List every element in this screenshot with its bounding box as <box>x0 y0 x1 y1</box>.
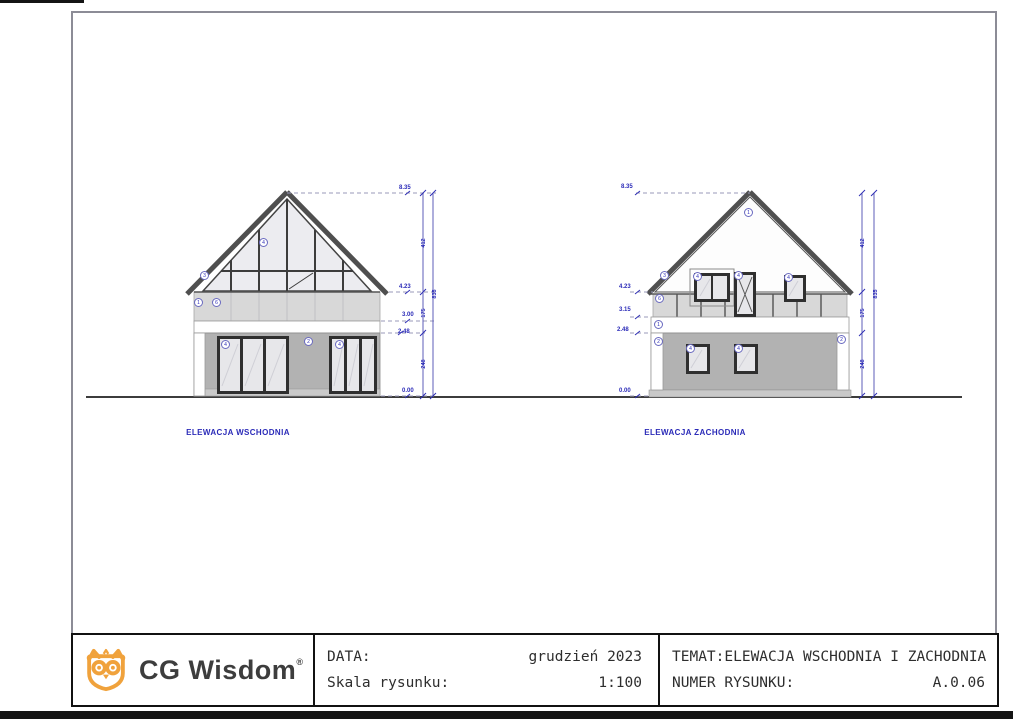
west-tag-pilaster-right: 2 <box>837 335 846 344</box>
east-dim-ticks <box>398 190 436 399</box>
west-elevation-caption: ELEWACJA ZACHODNIA <box>610 428 780 437</box>
scale-row: Skala rysunku: 1:100 <box>327 670 642 696</box>
owl-logo-icon <box>83 647 129 693</box>
west-tag-window-upper-right: 4 <box>784 273 793 282</box>
drawing-number-value: A.0.06 <box>933 670 985 696</box>
west-tag-gable-wall: 1 <box>744 208 753 217</box>
title-block-data-cell: DATA: grudzień 2023 Skala rysunku: 1:100 <box>315 635 660 705</box>
west-chain-dim-middle: 175 <box>860 300 866 326</box>
east-tag-parapet-band: 6 <box>212 298 221 307</box>
subject-row: TEMAT: ELEWACJA WSCHODNIA I ZACHODNIA <box>672 644 985 670</box>
drawing-number-row: NUMER RYSUNKU: A.0.06 <box>672 670 985 696</box>
west-tag-window-ground-right: 4 <box>734 344 743 353</box>
west-elevation-drawing <box>630 190 877 399</box>
west-overall-dim: 835 <box>873 281 879 307</box>
west-tag-roof: 3 <box>660 271 669 280</box>
logo-registered-mark: ® <box>296 657 303 667</box>
east-tag-roof: 3 <box>200 271 209 280</box>
subject-value: ELEWACJA WSCHODNIA I ZACHODNIA <box>724 644 986 670</box>
scale-label: Skala rysunku: <box>327 670 449 696</box>
east-level-eaves: 4.23 <box>399 284 411 290</box>
west-level-band: 3.15 <box>619 307 631 313</box>
east-level-ground: 0.00 <box>402 388 414 394</box>
title-block-subject-cell: TEMAT: ELEWACJA WSCHODNIA I ZACHODNIA NU… <box>660 635 997 705</box>
east-elevation-caption: ELEWACJA WSCHODNIA <box>153 428 323 437</box>
east-wall-strip <box>194 321 380 333</box>
logo-text: CG Wisdom <box>139 655 296 685</box>
west-level-ticks <box>635 191 640 398</box>
east-corner-pilaster <box>194 333 205 396</box>
west-tag-window-ground-left: 4 <box>686 344 695 353</box>
west-level-ground: 0.00 <box>619 388 631 394</box>
west-tag-wall-strip: 1 <box>654 320 663 329</box>
west-chain-dim-upper: 412 <box>860 230 866 256</box>
east-tag-gable-glazing: 4 <box>259 238 268 247</box>
east-tag-door-right: 4 <box>335 340 344 349</box>
west-tag-pilaster-left: 2 <box>654 337 663 346</box>
east-tag-corner-wall: 1 <box>194 298 203 307</box>
east-overall-dim: 835 <box>432 281 438 307</box>
date-label: DATA: <box>327 644 371 670</box>
west-tag-balcony-door: 4 <box>734 271 743 280</box>
title-block: CG Wisdom® DATA: grudzień 2023 Skala rys… <box>71 633 999 707</box>
scale-value: 1:100 <box>598 670 642 696</box>
east-chain-dim-lower: 248 <box>421 351 427 377</box>
west-plinth <box>649 390 851 397</box>
date-value: grudzień 2023 <box>529 644 643 670</box>
west-level-ridge: 8.35 <box>621 184 633 190</box>
drawing-sheet: 8.35 4.23 3.00 2.48 0.00 412 175 248 835… <box>0 0 1013 719</box>
west-level-floor: 2.48 <box>617 327 629 333</box>
drawing-number-label: NUMER RYSUNKU: <box>672 670 794 696</box>
west-chain-dim-lower: 248 <box>860 351 866 377</box>
date-row: DATA: grudzień 2023 <box>327 644 642 670</box>
east-level-ridge: 8.35 <box>399 185 411 191</box>
east-chain-dim-upper: 412 <box>421 230 427 256</box>
logo-wordmark: CG Wisdom® <box>139 655 303 686</box>
east-tag-door-left: 4 <box>221 340 230 349</box>
west-level-eaves: 4.23 <box>619 284 631 290</box>
east-tag-ground-wall: 2 <box>304 337 313 346</box>
title-block-logo-cell: CG Wisdom® <box>73 635 315 705</box>
east-level-floor: 2.48 <box>398 329 410 335</box>
east-elevation-drawing <box>187 190 436 399</box>
west-wall-strip <box>651 317 849 333</box>
east-chain-dim-middle: 175 <box>421 300 427 326</box>
east-level-band: 3.00 <box>402 312 414 318</box>
west-tag-window-upper-left: 4 <box>693 272 702 281</box>
scan-edge-bar <box>0 711 1013 719</box>
west-tag-parapet-band: 6 <box>655 294 664 303</box>
subject-label: TEMAT: <box>672 644 724 670</box>
